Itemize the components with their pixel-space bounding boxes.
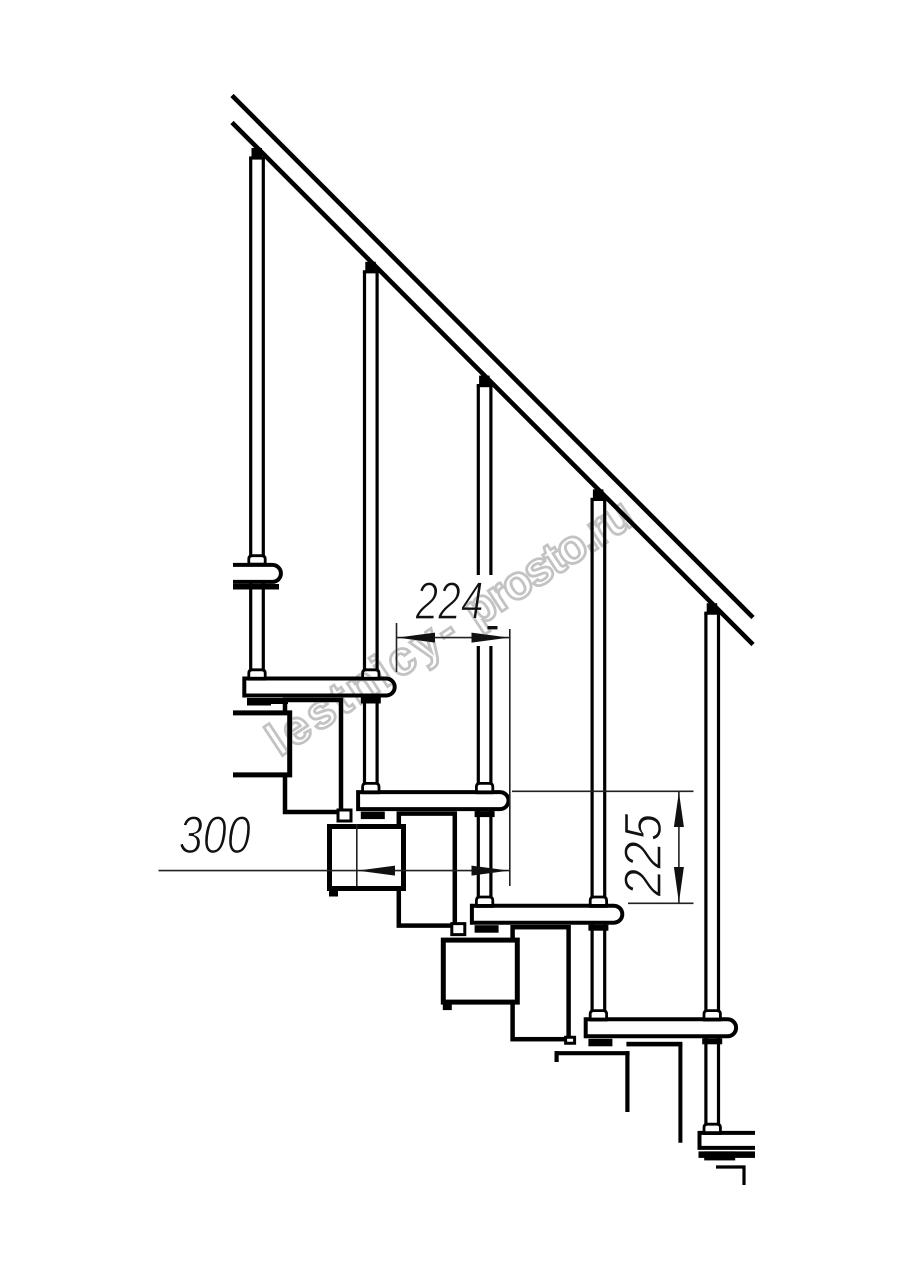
svg-text:300: 300 [179,806,251,865]
svg-text:225: 225 [614,813,673,897]
